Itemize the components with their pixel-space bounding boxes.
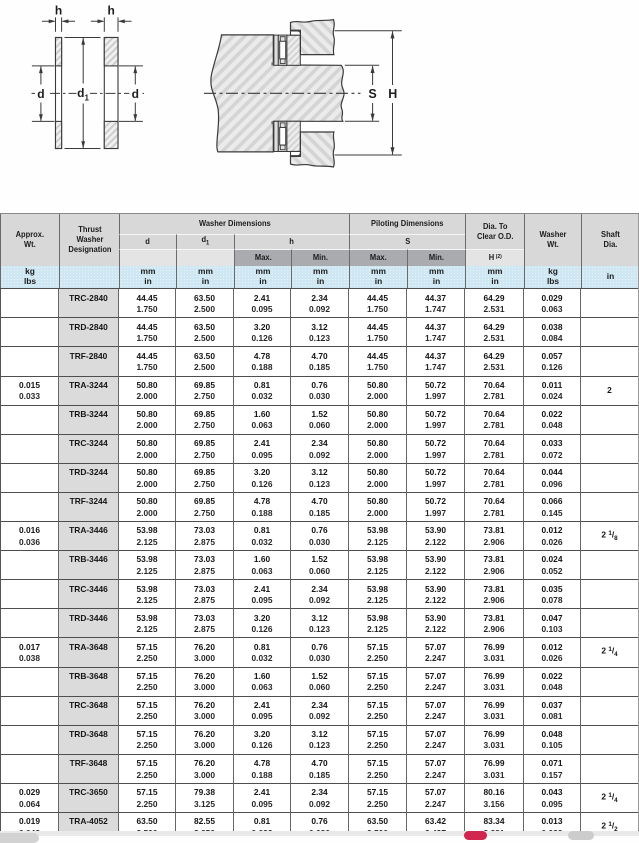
svg-text:h: h [55,4,62,18]
svg-text:H: H [388,87,397,101]
svg-text:d: d [37,87,44,101]
svg-text:S: S [368,87,376,101]
svg-text:h: h [108,4,115,18]
svg-text:d: d [132,87,139,101]
